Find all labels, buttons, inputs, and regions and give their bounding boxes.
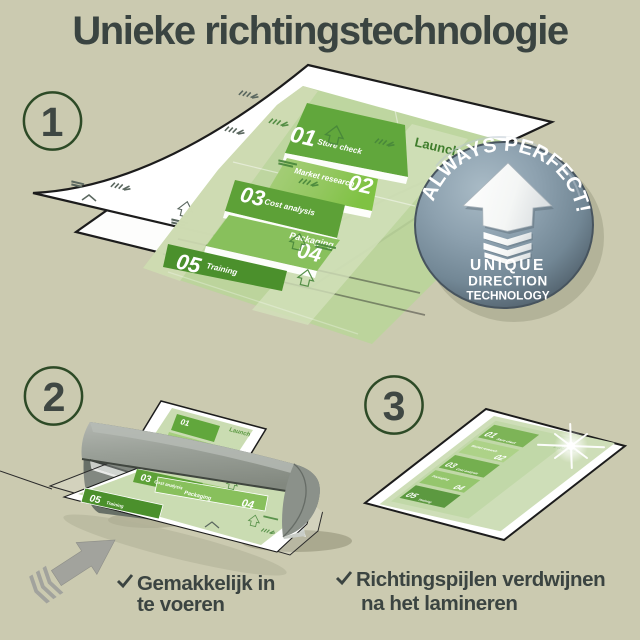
- svg-text:Gemakkelijk in: Gemakkelijk in: [137, 572, 275, 595]
- svg-text:1: 1: [41, 99, 64, 145]
- svg-text:3: 3: [383, 383, 406, 429]
- svg-text:UNIQUE: UNIQUE: [470, 257, 546, 274]
- svg-text:te voeren: te voeren: [137, 593, 225, 616]
- svg-text:Unieke richtingstechnologie: Unieke richtingstechnologie: [72, 9, 567, 53]
- svg-text:DIRECTION: DIRECTION: [468, 274, 548, 289]
- svg-text:Richtingspijlen verdwijnen: Richtingspijlen verdwijnen: [356, 568, 605, 591]
- svg-text:na het lamineren: na het lamineren: [361, 592, 518, 615]
- svg-text:TECHNOLOGY: TECHNOLOGY: [466, 289, 549, 303]
- svg-text:2: 2: [43, 374, 66, 420]
